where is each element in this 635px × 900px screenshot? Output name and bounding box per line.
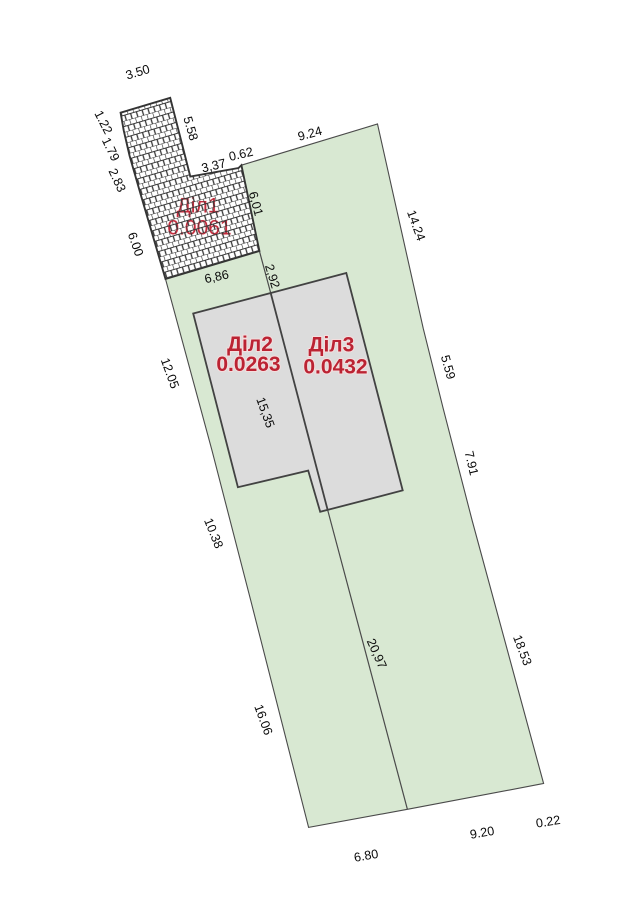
svg-text:1.22: 1.22 <box>91 108 115 136</box>
svg-text:1.79: 1.79 <box>99 135 122 163</box>
svg-text:6.80: 6.80 <box>353 847 380 865</box>
svg-text:5.59: 5.59 <box>438 354 458 381</box>
svg-text:9.20: 9.20 <box>469 824 496 842</box>
svg-text:12.05: 12.05 <box>158 356 182 390</box>
svg-text:9.24: 9.24 <box>296 124 323 144</box>
svg-text:6.00: 6.00 <box>125 230 146 258</box>
svg-text:14.24: 14.24 <box>404 208 428 242</box>
svg-text:Діл3: Діл3 <box>308 334 354 357</box>
svg-text:7.91: 7.91 <box>462 450 481 477</box>
svg-text:0.22: 0.22 <box>535 813 561 831</box>
svg-text:2.83: 2.83 <box>106 166 129 194</box>
svg-text:0.0263: 0.0263 <box>216 353 280 376</box>
svg-text:5.58: 5.58 <box>180 115 200 142</box>
svg-text:16.06: 16.06 <box>251 703 275 737</box>
svg-text:18.53: 18.53 <box>510 633 534 667</box>
svg-text:0.62: 0.62 <box>227 145 254 164</box>
svg-text:3.50: 3.50 <box>124 62 152 83</box>
svg-text:10.38: 10.38 <box>201 516 226 550</box>
svg-text:0.0432: 0.0432 <box>303 355 367 378</box>
